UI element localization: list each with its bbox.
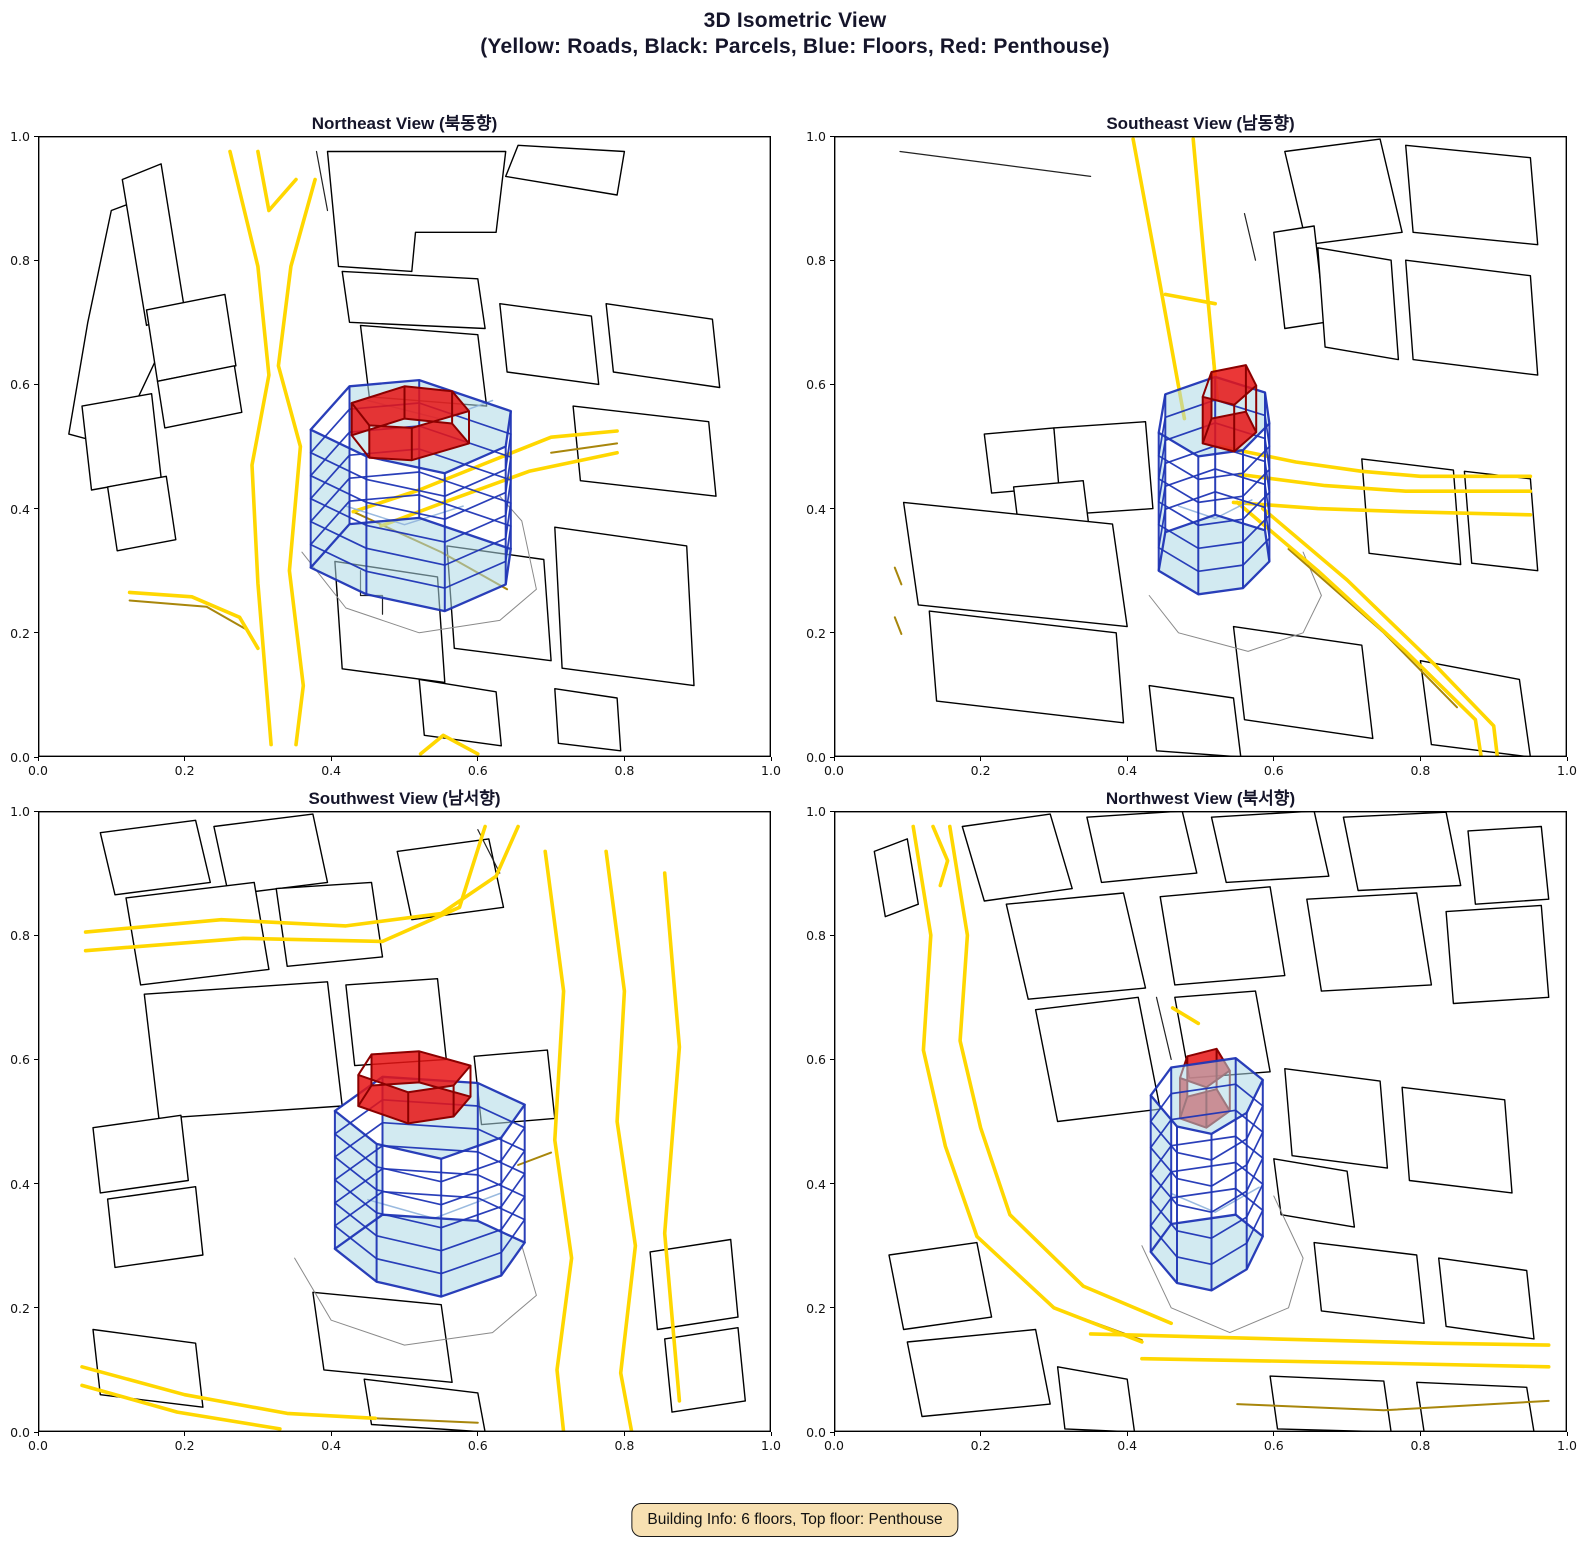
y-tick [830,632,834,633]
x-tick [331,1432,332,1436]
y-tick-label: 0.0 [790,1425,826,1440]
plot-area-southeast [834,136,1567,757]
y-tick [830,757,834,758]
x-tick-label: 1.0 [1545,763,1589,778]
y-tick [34,1307,38,1308]
building-info-annotation: Building Info: 6 floors, Top floor: Pent… [631,1503,958,1537]
parcel-polygon [1058,1367,1135,1432]
parcel-polygon [144,982,342,1119]
road-path [1091,1334,1549,1345]
parcel-polygon [555,527,694,685]
y-tick [830,1432,834,1433]
parcel-line [317,152,328,211]
parcel-polygon [1160,887,1285,985]
parcel-polygon [506,145,625,195]
parcel-polygon [342,271,485,328]
x-tick-label: 0.2 [163,763,207,778]
x-tick [834,1432,835,1436]
y-tick-label: 0.6 [790,1052,826,1067]
x-tick [477,1432,478,1436]
parcel-polygon [1318,248,1399,360]
y-tick-label: 0.8 [0,928,30,943]
y-tick [830,260,834,261]
parcel-polygon [328,152,506,272]
parcel-polygon [1343,812,1460,890]
road-path-dark [895,568,902,585]
parcel-polygon [364,1379,485,1432]
road-path [1142,1359,1549,1367]
x-tick [184,757,185,761]
y-tick-label: 0.6 [790,377,826,392]
y-tick [34,136,38,137]
parcel-polygon [1464,471,1537,570]
road-path-dark [130,601,247,630]
parcel-polygon [108,1187,203,1268]
parcel-polygon [1234,627,1373,739]
y-tick-label: 1.0 [0,804,30,819]
x-tick [1273,1432,1274,1436]
y-tick-label: 0.2 [0,626,30,641]
x-tick-label: 0.0 [812,763,856,778]
parcel-polygon [1314,1243,1424,1324]
x-tick [184,1432,185,1436]
y-tick-label: 1.0 [790,804,826,819]
x-tick-label: 0.4 [1105,763,1149,778]
y-tick [830,384,834,385]
parcel-polygon [1446,905,1549,1003]
x-tick [624,757,625,761]
parcel-polygon [1006,893,1145,999]
parcel-polygon [889,1243,992,1330]
y-tick [34,811,38,812]
parcel-polygon [907,1330,1050,1417]
y-tick-label: 0.0 [790,750,826,765]
parcel-polygon [214,814,328,895]
subplot-title-northwest: Northwest View (북서향) [834,784,1567,809]
parcel-polygon [100,820,210,895]
y-tick [34,1183,38,1184]
y-tick [34,1059,38,1060]
y-tick [830,508,834,509]
parcel-polygon [1307,893,1432,991]
y-tick-label: 0.6 [0,1052,30,1067]
parcel-polygon [1087,811,1197,882]
parcel-line [1245,214,1256,261]
y-tick-label: 0.2 [0,1301,30,1316]
parcel-polygon [1402,1087,1512,1193]
subplot-title-southeast: Southeast View (남동향) [834,109,1567,134]
parcel-line [1157,997,1172,1059]
parcel-polygon [1439,1258,1534,1339]
x-tick [834,757,835,761]
subplot-title-northeast: Northeast View (북동향) [38,109,771,134]
road-path [1193,139,1217,400]
x-tick-label: 0.4 [309,763,353,778]
y-tick-label: 0.4 [0,502,30,517]
x-tick-label: 0.0 [812,1438,856,1453]
x-tick-label: 0.2 [163,1438,207,1453]
x-tick-label: 0.8 [602,1438,646,1453]
parcel-polygon [1285,1069,1388,1168]
x-tick [1420,757,1421,761]
parcel-polygon [904,502,1128,626]
plot-area-northwest [834,811,1567,1432]
x-tick [38,1432,39,1436]
y-tick-label: 0.0 [0,750,30,765]
x-tick [1567,757,1568,761]
y-tick-label: 0.2 [790,1301,826,1316]
x-tick [1273,757,1274,761]
parcel-polygon [929,611,1123,723]
road-path [130,592,258,648]
y-tick [830,136,834,137]
parcel-polygon [1036,997,1161,1121]
y-tick-label: 0.8 [0,253,30,268]
y-tick [34,935,38,936]
x-tick [1420,1432,1421,1436]
road-path [278,180,315,745]
x-tick-label: 0.8 [1398,763,1442,778]
subplot-title-southwest: Southwest View (남서향) [38,784,771,809]
y-tick [830,1183,834,1184]
x-tick-label: 0.6 [456,763,500,778]
parcel-polygon [419,679,501,745]
x-tick [980,757,981,761]
y-tick-label: 0.6 [0,377,30,392]
x-tick-label: 0.2 [959,763,1003,778]
x-tick-label: 0.8 [602,763,646,778]
parcel-polygon [650,1240,738,1330]
x-tick [771,757,772,761]
x-tick-label: 0.6 [1252,763,1296,778]
x-tick [331,757,332,761]
x-tick-label: 0.8 [1398,1438,1442,1453]
x-tick [477,757,478,761]
figure-title: 3D Isometric View [0,9,1590,33]
parcel-polygon [126,882,269,985]
y-tick [34,632,38,633]
y-tick [830,811,834,812]
parcel-polygon [962,814,1072,901]
y-tick-label: 0.8 [790,253,826,268]
road-path [545,851,571,1432]
x-tick-label: 1.0 [749,1438,793,1453]
y-tick-label: 0.8 [790,928,826,943]
plot-area-southwest [38,811,771,1432]
parcel-polygon [1406,260,1538,375]
y-tick-label: 0.0 [0,1425,30,1440]
figure: 3D Isometric View (Yellow: Roads, Black:… [0,0,1590,1560]
parcel-polygon [555,689,621,751]
figure-subtitle: (Yellow: Roads, Black: Parcels, Blue: Fl… [0,35,1590,59]
parcel-polygon [1212,811,1329,882]
parcel-polygon [108,476,176,551]
y-tick [830,1059,834,1060]
y-tick-label: 0.4 [0,1177,30,1192]
parcel-polygon [1149,686,1241,757]
x-tick-label: 1.0 [749,763,793,778]
y-tick [830,935,834,936]
x-tick [1127,757,1128,761]
parcel-polygon [500,304,599,385]
parcel-polygon [573,406,716,496]
x-tick-label: 0.0 [16,763,60,778]
x-tick-label: 0.6 [1252,1438,1296,1453]
road-path-dark [895,617,902,634]
y-tick-label: 0.4 [790,1177,826,1192]
road-path [258,152,296,211]
parcel-line [900,152,1091,177]
x-tick-label: 0.0 [16,1438,60,1453]
y-tick [34,757,38,758]
parcel-polygon [606,304,720,388]
y-tick-label: 0.4 [790,502,826,517]
road-path [230,152,271,745]
parcel-polygon [1406,145,1538,244]
parcel-polygon [93,1115,188,1193]
plot-area-northeast [38,136,771,757]
parcel-polygon [1274,1159,1355,1227]
parcel-polygon [1468,827,1549,905]
x-tick-label: 1.0 [1545,1438,1589,1453]
road-path [933,827,948,886]
parcel-polygon [82,394,161,490]
x-tick [1567,1432,1568,1436]
parcel-polygon [874,839,918,917]
parcel-polygon [1270,1376,1391,1432]
y-tick-label: 1.0 [790,129,826,144]
y-tick-label: 1.0 [0,129,30,144]
y-tick [34,260,38,261]
y-tick [34,1432,38,1433]
x-tick [1127,1432,1128,1436]
x-tick [980,1432,981,1436]
x-tick-label: 0.4 [309,1438,353,1453]
y-tick [34,508,38,509]
x-tick-label: 0.6 [456,1438,500,1453]
y-tick-label: 0.2 [790,626,826,641]
y-tick [34,384,38,385]
road-path [606,851,635,1432]
y-tick [830,1307,834,1308]
x-tick-label: 0.2 [959,1438,1003,1453]
x-tick [771,1432,772,1436]
road-path [1133,139,1184,419]
x-tick [38,757,39,761]
x-tick [624,1432,625,1436]
x-tick-label: 0.4 [1105,1438,1149,1453]
